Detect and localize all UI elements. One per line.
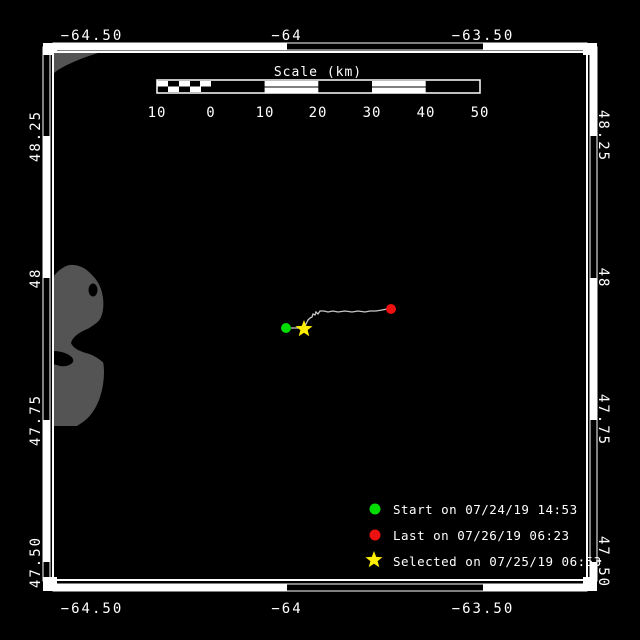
lon-tick-label: −64: [271, 601, 302, 617]
lat-tick-label: 48.25: [28, 110, 44, 162]
scale-tick: 20: [309, 105, 328, 121]
lon-tick-label: −63.50: [452, 601, 515, 617]
lon-tick-label: −63.50: [452, 28, 515, 44]
last-marker[interactable]: [386, 304, 396, 314]
scale-tick: 30: [363, 105, 382, 121]
lat-tick-label: 48: [28, 268, 44, 289]
lon-tick-label: −64.50: [61, 601, 124, 617]
legend: Start on 07/24/19 14:53 Last on 07/26/19…: [365, 502, 601, 569]
scale-tick: 10: [256, 105, 275, 121]
start-marker[interactable]: [281, 323, 291, 333]
track-map: Scale (km) 10 0 10 20 30 40 50 −64.50 −6…: [0, 0, 640, 640]
coast-lake: [89, 284, 98, 297]
scale-tick: 40: [417, 105, 436, 121]
corner-mark-top-right: [583, 43, 597, 55]
legend-last-label: Last on 07/26/19 06:23: [393, 528, 570, 543]
lat-tick-label: 48: [595, 268, 611, 289]
legend-last-dot: [370, 530, 381, 541]
lat-tick-label: 47.75: [28, 394, 44, 446]
lat-tick-label: 48.25: [595, 110, 611, 162]
legend-start-label: Start on 07/24/19 14:53: [393, 502, 578, 517]
lat-tick-label: 47.50: [28, 536, 44, 588]
scale-bar-title: Scale (km): [274, 65, 362, 80]
scale-tick: 10: [148, 105, 167, 121]
legend-selected-label: Selected on 07/25/19 06:53: [393, 554, 602, 569]
legend-start-dot: [370, 504, 381, 515]
lon-tick-label: −64: [271, 28, 302, 44]
lat-tick-label: 47.75: [595, 394, 611, 446]
scale-tick: 0: [206, 105, 215, 121]
lon-tick-label: −64.50: [61, 28, 124, 44]
scale-tick: 50: [471, 105, 490, 121]
